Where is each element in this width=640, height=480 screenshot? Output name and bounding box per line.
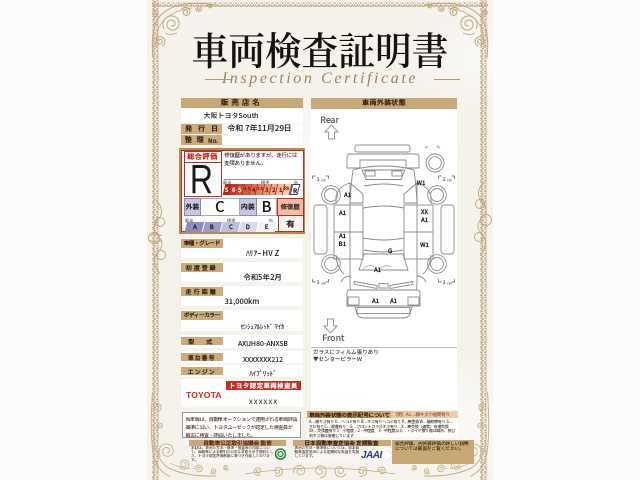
svg-text:3: 3 [443, 279, 446, 286]
svg-text:W1: W1 [416, 178, 426, 187]
svg-text:A1: A1 [389, 296, 398, 305]
svg-text:cm: cm [447, 179, 452, 183]
svg-text:A1: A1 [373, 265, 382, 274]
svg-text:A1: A1 [343, 190, 352, 199]
svg-text:cm: cm [447, 282, 452, 286]
svg-text:G: G [388, 246, 392, 255]
svg-text:B1: B1 [339, 239, 347, 248]
svg-text:A1: A1 [420, 215, 429, 224]
svg-text:3: 3 [317, 279, 320, 286]
svg-text:cm: cm [321, 282, 326, 286]
svg-text:3: 3 [317, 176, 320, 183]
svg-text:W1: W1 [419, 240, 429, 249]
svg-text:3: 3 [443, 176, 446, 183]
svg-text:A1: A1 [338, 208, 347, 217]
svg-text:A1: A1 [371, 296, 380, 305]
svg-text:cm: cm [321, 179, 326, 183]
